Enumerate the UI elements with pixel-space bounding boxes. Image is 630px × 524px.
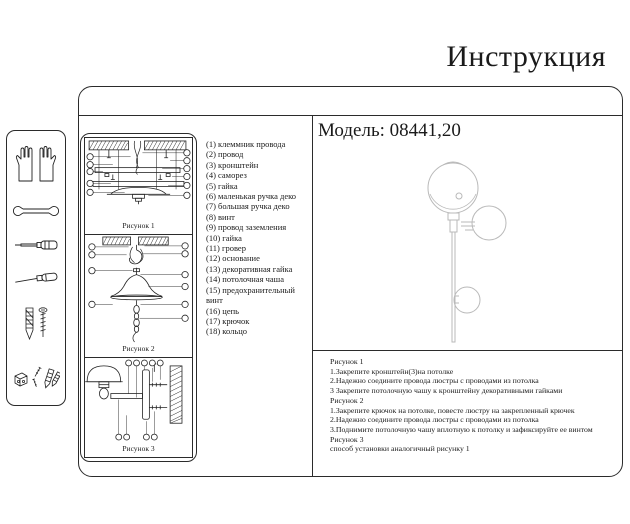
model-title: Модель: 08441,20 <box>318 120 461 142</box>
parts-list-item: (8) винт <box>206 212 310 222</box>
parts-list-item: (12) основание <box>206 253 310 263</box>
awl-icon <box>13 271 59 285</box>
figures-inner-frame: Рисунок 1 <box>84 137 193 458</box>
parts-list-item: (16) цепь <box>206 306 310 316</box>
figure-1-diagram <box>83 138 194 220</box>
parts-list-item: (6) маленькая ручка деко <box>206 191 310 201</box>
instruction-line: Рисунок 2 <box>330 396 622 406</box>
parts-list-item: (4) саморез <box>206 170 310 180</box>
instruction-line: 1.Закрепите крючок на потолке, повесте л… <box>330 406 622 416</box>
tools-sidebar <box>6 130 66 406</box>
instruction-line: Рисунок 1 <box>330 357 622 367</box>
figures-panel: Рисунок 1 <box>80 133 197 462</box>
parts-list-item: (18) кольцо <box>206 326 310 336</box>
anchor-and-screw-icon <box>21 306 51 342</box>
figure-3-diagram <box>83 358 194 442</box>
parts-list-item: (7) большая ручка деко <box>206 201 310 211</box>
parts-list-item: (10) гайка <box>206 233 310 243</box>
parts-list-item: (17) крючок <box>206 316 310 326</box>
header-strip <box>79 87 622 116</box>
instruction-line: 1.Закрепите кронштейн(3)на потолке <box>330 367 622 377</box>
parts-list-item: (14) потолочная чаша <box>206 274 310 284</box>
parts-list-item: (13) декоративная гайка <box>206 264 310 274</box>
parts-list: (1) клеммник провода(2) провод(3) кроншт… <box>206 139 310 337</box>
fasteners-icon <box>12 363 60 391</box>
parts-list-item: (5) гайка <box>206 181 310 191</box>
product-drawing <box>403 150 533 348</box>
figure-2-diagram <box>83 235 194 343</box>
instruction-line: 3.Поднимите потолочную чашу вплотную к п… <box>330 425 622 435</box>
screwdriver-icon <box>13 239 59 251</box>
instruction-line: 3 Закрепите потолочную чашу к кронштейну… <box>330 386 622 396</box>
page-title: Инструкция <box>446 40 606 74</box>
parts-list-item: (9) провод заземления <box>206 222 310 232</box>
parts-list-item: (11) гровер <box>206 243 310 253</box>
figure-2: Рисунок 2 <box>85 235 192 358</box>
gloves-icon <box>15 145 57 183</box>
figure-1-label: Рисунок 1 <box>122 221 154 230</box>
figure-3: Рисунок 3 <box>85 358 192 457</box>
parts-list-item: (15) предохранительный винт <box>206 285 310 306</box>
parts-list-item: (3) кронштейн <box>206 160 310 170</box>
figure-2-label: Рисунок 2 <box>122 344 154 353</box>
parts-list-item: (2) провод <box>206 149 310 159</box>
instruction-line: 2.Надежно соедините провода люстры с про… <box>330 415 622 425</box>
instructions-block: Рисунок 11.Закрепите кронштейн(3)на пото… <box>330 357 622 454</box>
instruction-line: Рисунок 3 <box>330 435 622 445</box>
figure-1: Рисунок 1 <box>85 138 192 235</box>
instruction-sheet: Инструкция <box>0 0 630 524</box>
wrench-icon <box>13 204 59 218</box>
figure-3-label: Рисунок 3 <box>122 444 154 453</box>
instruction-line: способ установки аналогичный рисунку 1 <box>330 444 622 454</box>
right-horizontal-divider <box>312 350 622 351</box>
instruction-line: 2.Надежно соедините провода люстры с про… <box>330 376 622 386</box>
parts-list-item: (1) клеммник провода <box>206 139 310 149</box>
vertical-divider <box>312 116 313 476</box>
